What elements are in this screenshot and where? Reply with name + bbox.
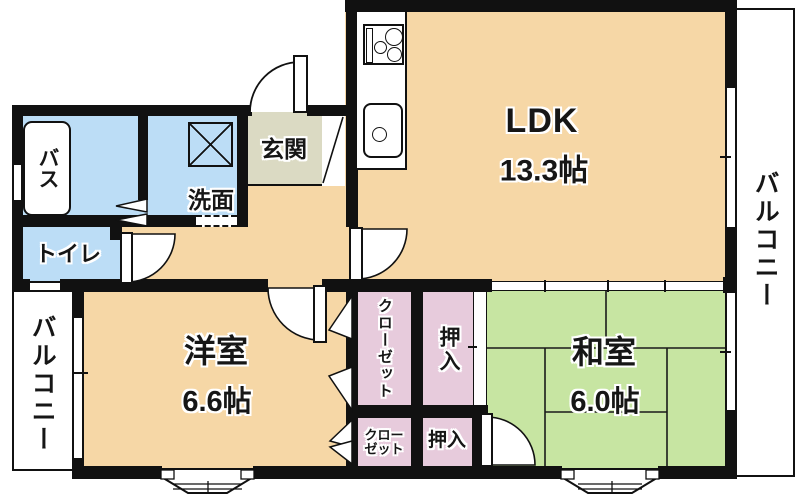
bay-window-japanese — [560, 469, 660, 493]
ldk-door — [350, 228, 407, 280]
room-label-western: 洋室 — [184, 335, 248, 369]
toilet-door — [121, 233, 175, 283]
room-label-washroom: 洗面 — [188, 188, 234, 212]
room-size-japanese: 6.0帖 — [570, 387, 639, 417]
room-label-oshiire-upper: 押入 — [437, 326, 459, 374]
room-label-ldk: LDK — [506, 104, 579, 140]
room-label-entrance: 玄関 — [261, 137, 307, 161]
japanese-room-door — [481, 414, 535, 466]
floor-plan: LDK 13.3帖 洋室 6.6帖 和室 6.0帖 玄関 バス 洗面 トイレ バ… — [0, 0, 800, 502]
room-label-toilet: トイレ — [35, 242, 101, 265]
room-label-bath: バス — [36, 147, 58, 189]
room-label-balcony-left: バルコニー — [29, 314, 55, 454]
room-size-western: 6.6帖 — [182, 387, 251, 417]
room-label-japanese: 和室 — [572, 336, 636, 370]
room-label-oshiire-lower: 押入 — [428, 431, 466, 451]
room-size-ldk: 13.3帖 — [500, 155, 588, 187]
western-room-door — [268, 286, 326, 342]
entrance-step-line — [323, 117, 343, 183]
bay-window-western — [160, 469, 255, 493]
room-label-closet-lower: クローゼット — [361, 428, 407, 455]
room-label-balcony-right: バルコニー — [752, 170, 778, 310]
bath-folding-door — [116, 199, 147, 226]
closet-lower-folding-door — [330, 420, 352, 464]
entrance-door — [250, 56, 307, 112]
closet-upper-folding-door — [329, 296, 352, 410]
room-label-closet-upper: クローゼット — [376, 298, 392, 400]
